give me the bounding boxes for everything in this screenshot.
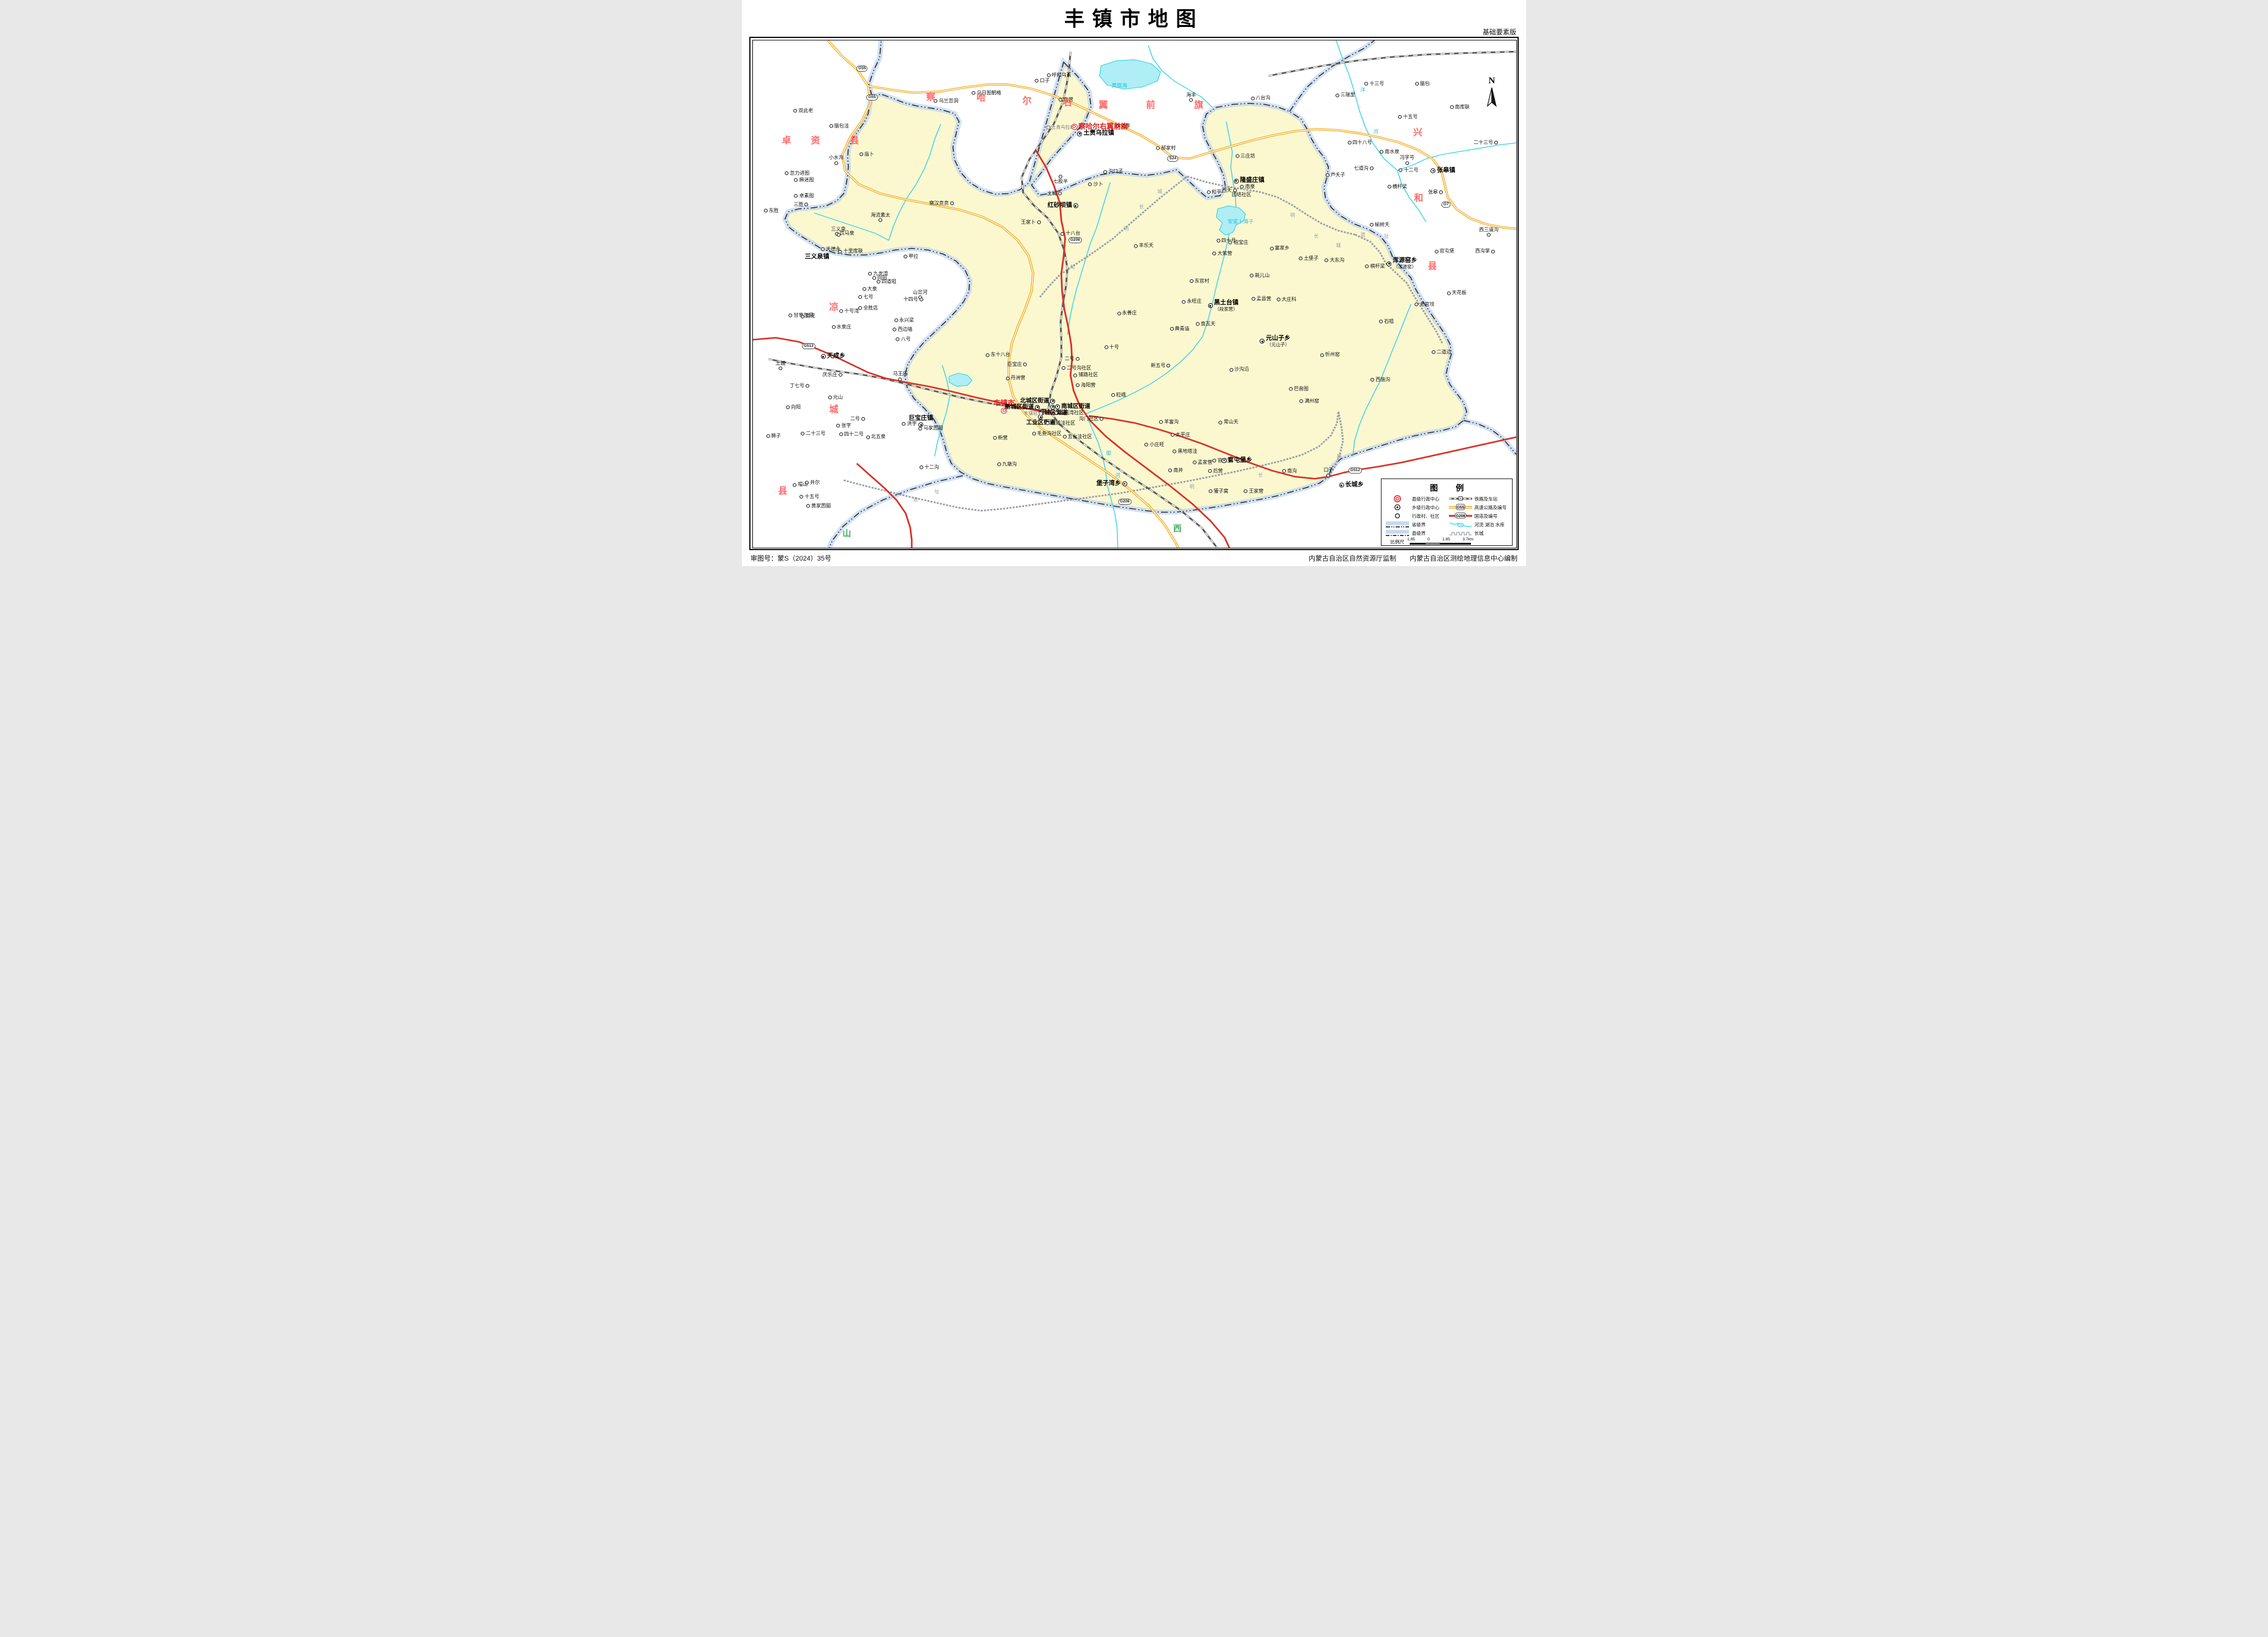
village-dot-icon	[799, 495, 803, 499]
wall-name-char: 明	[1189, 484, 1194, 489]
place-name: 四十八号	[1353, 140, 1372, 145]
village-label: 大紫营	[1212, 251, 1232, 256]
village-label: 棋杆梁	[1365, 264, 1385, 269]
village-label: 王家卜	[1021, 220, 1041, 225]
road-number-shield: G208	[1118, 499, 1132, 505]
village-dot-icon	[1047, 74, 1051, 77]
place-name: 山	[842, 529, 851, 538]
village-dot-icon	[1432, 350, 1435, 354]
village-label: 七号	[858, 295, 873, 300]
scale-label: 比例尺	[1390, 539, 1404, 545]
place-name: 三瑞里	[1340, 93, 1355, 97]
village-dot-icon	[1370, 378, 1374, 382]
legend-item-label: 县级界	[1412, 530, 1426, 537]
place-name: 天花板	[1452, 290, 1467, 295]
place-name: 口子	[1040, 78, 1049, 83]
region-name-char: 卓	[782, 136, 791, 146]
village-label: 老官坟	[1415, 301, 1434, 306]
village-dot-icon	[1230, 368, 1233, 371]
village-label: 丹洲营	[1006, 376, 1026, 380]
place-name: 安家卜海子	[1228, 219, 1254, 224]
village-dot-icon	[1006, 376, 1010, 380]
village-dot-icon	[896, 338, 899, 341]
place-name: 沟门社区	[1079, 416, 1098, 421]
place-name: 十号	[1109, 345, 1119, 350]
village-dot-icon	[1062, 366, 1065, 370]
village-dot-icon	[993, 436, 997, 440]
village-label: 西三道沟	[1479, 227, 1499, 236]
village-dot-icon	[997, 463, 1001, 466]
place-name: 富家乡	[1275, 246, 1290, 251]
place-name: 向阳	[791, 404, 801, 409]
village-label: 新五号	[1151, 363, 1170, 368]
legend-symbol-town-icon	[1385, 503, 1410, 512]
wall-name-char: 城	[1157, 189, 1162, 194]
village-label: 马王庙	[893, 371, 907, 380]
town-label: 长城乡	[1339, 482, 1364, 489]
village-label: 王家营	[1244, 489, 1263, 494]
village-label: 十五号	[1398, 115, 1418, 119]
place-name: 脑包洼	[834, 124, 849, 129]
place-name: 河	[1373, 129, 1378, 135]
village-dot-icon	[806, 384, 809, 388]
village-dot-icon	[1088, 183, 1092, 186]
village-dot-icon	[920, 466, 923, 469]
village-dot-icon	[950, 202, 954, 205]
place-name: 右	[1063, 98, 1072, 108]
place-name: 新城湾社区	[1059, 410, 1084, 415]
village-label: 二号	[850, 416, 865, 421]
village-dot-icon	[1182, 300, 1185, 303]
village-dot-icon	[1236, 154, 1239, 158]
village-label: 向阳	[786, 404, 801, 409]
legend-item-label: 行政村、社区	[1412, 513, 1439, 520]
legend-symbol-county-icon	[1385, 494, 1410, 503]
village-label: 西施沟	[1370, 377, 1390, 382]
village-dot-icon	[1270, 246, 1274, 250]
legend-item: G55 高速公路及编号	[1448, 503, 1508, 512]
place-name: 盂县营	[1257, 297, 1271, 301]
village-dot-icon	[860, 153, 863, 156]
village-label: 忻州窑	[1320, 352, 1340, 357]
legend-item: 县级行政中心	[1385, 494, 1445, 503]
village-dot-icon	[863, 287, 866, 291]
legend-item-label: 县级行政中心	[1412, 496, 1439, 502]
place-name: 十八台	[1065, 231, 1080, 236]
village-label: 横杆梁	[1388, 184, 1407, 189]
place-name: 红砂坝镇	[1048, 203, 1072, 210]
place-name: 郝家村	[1161, 145, 1176, 150]
village-dot-icon	[1370, 223, 1374, 227]
place-name: 九墩沟	[1002, 462, 1017, 467]
village-label: 黄家圐圙	[806, 504, 831, 508]
place-name: 长	[1314, 234, 1319, 239]
region-name-char: 翼	[1098, 100, 1108, 110]
village-label: 羊富沟	[1159, 419, 1179, 424]
province-name-char: 山	[842, 529, 851, 538]
village-dot-icon	[1320, 353, 1324, 357]
village-dot-icon	[1073, 373, 1077, 377]
station-dot-icon	[1039, 412, 1043, 415]
township-center-dot-icon	[1222, 458, 1227, 463]
village-dot-icon	[839, 309, 843, 313]
place-name: 十五号	[804, 494, 819, 499]
legend-symbol-nat-icon: G208	[1448, 512, 1473, 520]
legend-item: 行政村、社区	[1385, 512, 1445, 520]
legend-column-left: 县级行政中心 乡级行政中心 行政村、社区 省级界 县级界	[1385, 494, 1445, 537]
village-label: 土城	[1047, 191, 1062, 196]
road-number-shield: G512	[802, 343, 815, 349]
place-name: 十四号	[904, 297, 918, 302]
village-dot-icon	[832, 325, 836, 329]
township-center-dot-icon	[1260, 339, 1264, 344]
village-dot-icon	[1159, 420, 1163, 424]
village-label: 向阳	[872, 275, 887, 280]
place-name: 黄家圐圙	[811, 504, 831, 508]
village-dot-icon	[839, 433, 843, 436]
wall-name-char: 长	[1314, 234, 1319, 239]
village-dot-icon	[1365, 265, 1369, 268]
legend-item: 省级界	[1385, 520, 1445, 529]
place-name: 乌兰忽洞	[939, 98, 958, 103]
village-dot-icon	[1435, 249, 1438, 253]
town-label: 红砂坝镇	[1048, 203, 1078, 210]
village-dot-icon	[794, 194, 798, 198]
village-label: 黑地塔洼	[1173, 448, 1197, 453]
place-name: 黑地塔洼	[1177, 448, 1197, 453]
legend-column-right: 铁路及车站 G55 高速公路及编号 G208 国道及编号 河流 湖泊 水库 长城	[1448, 494, 1508, 537]
place-name: 井尔	[810, 480, 820, 485]
place-name: 遗	[913, 497, 918, 502]
village-dot-icon	[1032, 432, 1036, 436]
village-dot-icon	[1046, 422, 1049, 425]
village-label: 沙沟沿	[1230, 367, 1249, 372]
village-label: 庆乐庄	[823, 372, 842, 377]
place-name: 黄旗海	[1111, 83, 1127, 88]
place-name: 兴	[1413, 128, 1423, 138]
village-dot-icon	[1209, 490, 1212, 493]
village-label: 柏宝庄	[1228, 240, 1248, 244]
place-name: 长	[1139, 205, 1144, 210]
place-name: 沙沟沿	[1234, 367, 1249, 372]
place-name: 芦夭子	[1331, 173, 1345, 178]
village-label: 西边墙	[893, 327, 912, 332]
village-label: 甲拉	[904, 254, 918, 259]
place-name: 长城乡	[1345, 482, 1364, 489]
legend-item-label: 铁路及车站	[1475, 496, 1498, 502]
village-dot-icon	[1035, 79, 1038, 83]
village-label: 大庄科	[1277, 297, 1296, 302]
map-sheet: 丰镇市地图 基础要素版 N 图 例 县级行政中心 乡级行政中心 行政村、社区 省…	[742, 0, 1526, 566]
village-label: 芦夭子	[1326, 173, 1345, 178]
village-label: 永旺庄	[1182, 299, 1201, 304]
village-label: 耗儿山	[1250, 273, 1269, 278]
village-dot-icon	[830, 124, 833, 128]
place-name: 堡子湾乡	[1097, 480, 1121, 487]
village-dot-icon	[1196, 322, 1200, 326]
village-label: 盂县营	[1252, 297, 1271, 301]
place-name: 团结社区	[1231, 192, 1251, 197]
village-dot-icon	[1156, 146, 1160, 150]
township-center-dot-icon	[1431, 168, 1435, 173]
village-dot-icon	[1405, 161, 1409, 165]
svg-text:G208: G208	[1456, 514, 1465, 518]
village-dot-icon	[1058, 192, 1062, 195]
village-label: 小水沟	[829, 156, 844, 165]
place-name: 二道边	[1437, 350, 1451, 355]
place-name: 五台洼社区	[1068, 434, 1092, 439]
town-label: 巨宝庄镇	[909, 415, 933, 428]
village-dot-icon	[793, 483, 796, 486]
village-dot-icon	[1212, 459, 1216, 463]
approval-number: 审图号：蒙S（2024）35号	[750, 553, 831, 563]
place-name: 西	[1173, 524, 1182, 533]
village-label: 麻迷图	[794, 177, 814, 182]
village-label: 南瓦夭	[1196, 322, 1215, 327]
village-dot-icon	[821, 248, 825, 251]
village-dot-icon	[1207, 191, 1211, 194]
village-dot-icon	[1193, 461, 1196, 464]
place-name: 永兴梁	[899, 318, 914, 323]
village-dot-icon	[834, 161, 838, 165]
village-label: 八号	[896, 336, 910, 341]
village-label: 四十二号	[839, 431, 864, 436]
village-label: 十三号	[1364, 81, 1384, 86]
village-dot-icon	[1447, 291, 1451, 295]
village-dot-icon	[801, 432, 804, 436]
place-name: 二号	[1065, 357, 1075, 361]
village-label: 富家乡	[1270, 246, 1290, 251]
village-label: 石咀	[1379, 319, 1394, 324]
region-name-char: 和	[1414, 194, 1423, 203]
village-label: 永兴梁	[894, 318, 914, 323]
village-dot-icon	[1105, 346, 1108, 349]
village-label: 呼和乌素	[1047, 73, 1072, 78]
village-dot-icon	[1171, 433, 1174, 437]
place-name: 马王庙	[893, 371, 907, 376]
wall-name-char: 明	[1124, 227, 1128, 232]
wall-name-char: 长	[1258, 472, 1263, 477]
village-label: 海阳营	[1076, 383, 1095, 388]
village-label: 大东沟	[1325, 257, 1344, 262]
township-center-dot-icon	[821, 354, 826, 359]
place-name: 忽力进图	[790, 171, 809, 176]
credits: 内蒙古自治区自然资源厅监制 内蒙古自治区测绘地理信息中心编制	[1309, 553, 1518, 563]
water-name-label: 黄旗海	[1111, 83, 1127, 88]
village-label: 丰乐夭	[1134, 243, 1154, 248]
place-name: 粒峨	[1116, 393, 1126, 398]
village-dot-icon	[1398, 115, 1402, 119]
road-number-shield: G55	[856, 66, 868, 72]
station-label: 丰镇站	[1024, 411, 1043, 416]
place-name: 前	[1146, 100, 1155, 110]
place-name: 榆树夭	[1375, 222, 1389, 227]
place-name: 耗儿山	[1255, 273, 1269, 278]
region-name-char: 县	[778, 486, 787, 496]
water-name-label: 河	[1373, 129, 1378, 135]
village-label: 海流素太	[871, 213, 890, 222]
place-name: 旗	[1194, 100, 1203, 110]
place-name: 土贵乌拉镇	[1083, 130, 1114, 137]
village-dot-icon	[972, 91, 975, 95]
svg-text:G55: G55	[1456, 505, 1464, 510]
village-label: 二道边	[1432, 350, 1451, 355]
village-label: 张字	[836, 423, 851, 428]
wall-name-char: 城	[1336, 243, 1341, 248]
village-dot-icon	[1059, 98, 1062, 102]
water-name-label: 安家卜海子	[1228, 219, 1254, 224]
place-name: 大庄科	[1282, 297, 1296, 302]
village-label: 太平庄	[1171, 433, 1190, 437]
street-label: 南城区街道	[1055, 404, 1091, 410]
village-dot-icon	[1450, 105, 1454, 109]
region-name-char: 旗	[1194, 100, 1203, 110]
legend-item-label: 高速公路及编号	[1475, 504, 1507, 511]
village-label: 孟家营	[1193, 460, 1212, 465]
place-name: 永善庄	[1122, 311, 1137, 316]
place-name: 县	[1427, 262, 1437, 271]
legend: 图 例 县级行政中心 乡级行政中心 行政村、社区 省级界 县级界 铁路及车站 G…	[1381, 478, 1512, 545]
village-dot-icon	[877, 280, 880, 284]
place-name: 大紫营	[1217, 251, 1232, 256]
place-name: 土城	[1047, 191, 1057, 196]
legend-symbol-village-icon	[1385, 512, 1410, 520]
place-name: 卓	[782, 136, 791, 146]
wall-name-char: 遗	[913, 497, 918, 502]
region-name-char: 尔	[1022, 96, 1032, 106]
place-name: 全胜店	[863, 306, 878, 311]
legend-item: 县级界	[1385, 529, 1445, 537]
place-name: 忻州窑	[1325, 352, 1340, 357]
village-dot-icon	[1103, 170, 1107, 173]
village-label: 巨宝庄	[1007, 362, 1027, 367]
place-name: 察汉贲贲	[929, 201, 949, 206]
village-label: 察汉贲贲	[929, 201, 954, 206]
road-number-shield: G7	[1442, 202, 1451, 208]
village-dot-icon	[986, 353, 989, 357]
village-label: 獾子窝	[1209, 489, 1228, 494]
road-number-shield: G55	[866, 94, 877, 100]
place-name: 黑土台镇（段家营）	[1214, 300, 1239, 311]
village-label: 庙卜	[860, 152, 874, 157]
place-name: 永旺庄	[1187, 299, 1201, 304]
village-dot-icon	[786, 406, 790, 409]
place-name: 双此老	[798, 108, 813, 113]
station-label: 土贵乌拉站	[1046, 125, 1075, 130]
road-number-shield: S24	[1168, 156, 1179, 162]
place-name: 甘草忽洞	[793, 313, 813, 318]
village-label: 永善庄	[1117, 311, 1137, 316]
village-label: 十里库联	[838, 249, 863, 254]
village-label: 西沟掌	[1475, 249, 1495, 254]
village-dot-icon	[1299, 257, 1302, 260]
village-dot-icon	[1388, 185, 1391, 189]
village-dot-icon	[858, 306, 862, 310]
village-dot-icon	[1076, 357, 1079, 361]
place-name: 元山	[833, 395, 843, 400]
village-dot-icon	[785, 172, 788, 175]
village-label: 后营	[1208, 469, 1223, 474]
village-label: 全胜店	[858, 306, 878, 311]
village-dot-icon	[788, 314, 792, 317]
village-label: 四十八号	[1348, 140, 1372, 145]
legend-item-label: 河流 湖泊 水库	[1475, 521, 1505, 528]
place-name: 北五泉	[871, 434, 886, 439]
place-name: 庙卜	[864, 152, 874, 157]
place-name: 山岔河	[913, 290, 928, 295]
place-name: 丰镇站	[1024, 411, 1038, 416]
village-dot-icon	[1217, 239, 1220, 243]
place-name: 西三道沟	[1479, 227, 1499, 232]
place-name: 水泉庄	[837, 325, 852, 330]
village-label: 乌兰忽洞	[934, 98, 958, 103]
village-label: 天德永	[821, 247, 841, 252]
village-label: 铺路社区	[1073, 372, 1098, 377]
legend-symbol-countyb-icon	[1385, 529, 1410, 537]
legend-item-label: 乡级行政中心	[1412, 504, 1439, 511]
village-dot-icon	[858, 295, 862, 299]
wall-name-char: 遗	[1361, 233, 1366, 238]
north-arrow-icon	[1484, 86, 1500, 107]
village-dot-icon	[1134, 244, 1138, 248]
place-name: 三义泉镇	[805, 254, 830, 261]
place-name: 张皋	[1428, 189, 1438, 194]
region-name-char: 哈	[977, 93, 986, 103]
place-name: 海阳营	[1081, 383, 1095, 388]
place-name: 址	[1384, 234, 1389, 239]
place-name: 狮子	[771, 434, 781, 439]
village-dot-icon	[828, 396, 832, 399]
legend-item: 铁路及车站	[1448, 494, 1508, 503]
village-label: 土城	[776, 361, 785, 370]
place-name: 孟家营	[1198, 460, 1212, 465]
water-name-label: 河	[1115, 473, 1121, 478]
place-name: 察哈尔右翼前旗	[1078, 123, 1128, 130]
village-label: 南井	[1168, 468, 1183, 473]
place-name: 七号	[863, 295, 873, 300]
place-name: 丁七号	[790, 384, 804, 388]
village-dot-icon	[1415, 303, 1418, 306]
village-label: 元山	[828, 395, 843, 400]
place-name: 洋	[1360, 88, 1366, 93]
place-name: 二号沟社区	[1067, 366, 1091, 371]
place-name: 河	[1115, 473, 1121, 478]
place-name: 西边墙	[898, 327, 912, 332]
place-name: 毛鱼沟社区	[1037, 431, 1062, 436]
village-dot-icon	[1380, 150, 1383, 154]
place-name: 獾子窝	[1214, 489, 1228, 494]
place-alt-name: （浑源窑）	[1393, 265, 1417, 270]
village-dot-icon	[868, 272, 872, 276]
place-name: 凉	[830, 303, 839, 312]
village-dot-icon	[902, 422, 905, 426]
edition-label: 基础要素版	[1483, 27, 1516, 37]
place-name: 铺路社区	[1078, 372, 1098, 377]
place-name: 官屯堡	[1440, 249, 1454, 254]
village-label: 四城洼社区	[1046, 421, 1075, 426]
region-name-char: 县	[850, 136, 859, 146]
place-name: 大泉	[868, 287, 877, 292]
place-name: 天成乡	[827, 353, 845, 360]
village-dot-icon	[1037, 221, 1041, 224]
village-dot-icon	[1059, 175, 1062, 178]
place-name: 十二沟	[924, 465, 939, 470]
place-name: 二号	[850, 416, 860, 421]
township-center-dot-icon	[1073, 203, 1078, 208]
village-label: 十号	[1105, 345, 1119, 350]
place-name: 新五号	[1151, 363, 1165, 368]
place-name: 尔	[1022, 96, 1032, 106]
